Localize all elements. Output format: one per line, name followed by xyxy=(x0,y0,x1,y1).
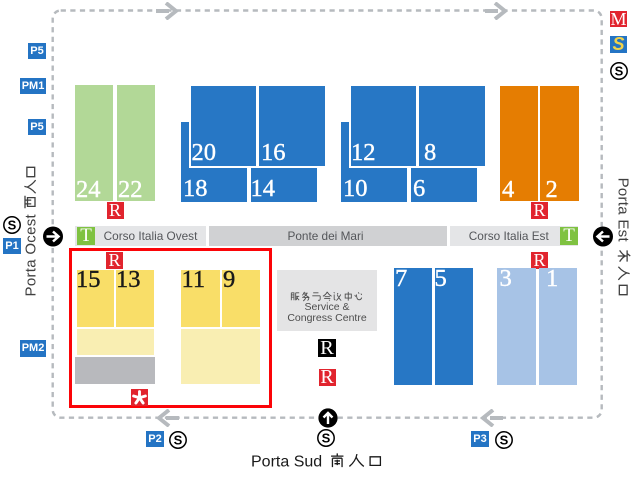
svg-text:S: S xyxy=(614,64,623,79)
svg-text:S: S xyxy=(174,432,183,447)
svg-text:S: S xyxy=(7,218,16,233)
svg-text:S: S xyxy=(499,432,508,447)
svg-text:S: S xyxy=(322,431,331,446)
